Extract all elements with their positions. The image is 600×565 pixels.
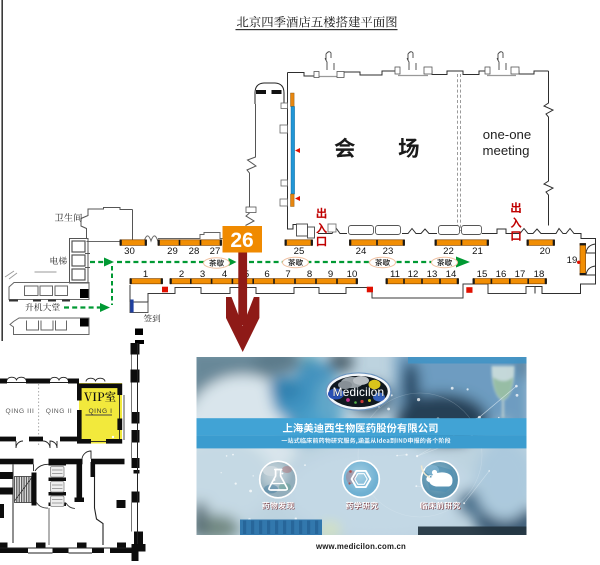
svg-text:Medicilon: Medicilon xyxy=(333,385,385,399)
svg-text:1: 1 xyxy=(143,269,148,280)
svg-text:26: 26 xyxy=(230,229,253,252)
svg-text:QING III: QING III xyxy=(6,408,35,415)
svg-text:3: 3 xyxy=(200,269,205,280)
svg-text:www.medicilon.com.cn: www.medicilon.com.cn xyxy=(315,542,406,551)
svg-text:one-one: one-one xyxy=(483,127,531,142)
svg-text:8: 8 xyxy=(307,269,312,280)
svg-text:21: 21 xyxy=(472,246,483,257)
svg-text:23: 23 xyxy=(383,246,394,257)
svg-text:9: 9 xyxy=(328,269,333,280)
svg-text:10: 10 xyxy=(347,269,358,280)
svg-text:14: 14 xyxy=(446,269,457,280)
svg-text:6: 6 xyxy=(264,269,269,280)
svg-text:28: 28 xyxy=(189,246,200,257)
svg-text:2: 2 xyxy=(179,269,184,280)
svg-text:29: 29 xyxy=(167,246,178,257)
svg-text:20: 20 xyxy=(540,246,551,257)
svg-text:27: 27 xyxy=(210,246,221,257)
svg-text:7: 7 xyxy=(285,269,290,280)
svg-text:11: 11 xyxy=(390,269,400,280)
svg-text:30: 30 xyxy=(124,246,135,257)
svg-text:19: 19 xyxy=(567,255,578,266)
svg-text:24: 24 xyxy=(356,246,367,257)
svg-text:4: 4 xyxy=(222,269,228,280)
svg-text:18: 18 xyxy=(534,269,545,280)
svg-text:12: 12 xyxy=(408,269,419,280)
svg-text:22: 22 xyxy=(443,246,454,257)
svg-text:25: 25 xyxy=(294,246,305,257)
svg-text:QING II: QING II xyxy=(46,408,73,415)
svg-text:15: 15 xyxy=(477,269,488,280)
svg-text:13: 13 xyxy=(427,269,438,280)
svg-text:16: 16 xyxy=(496,269,507,280)
svg-text:QING I: QING I xyxy=(88,408,112,415)
svg-text:meeting: meeting xyxy=(483,143,530,158)
svg-text:17: 17 xyxy=(515,269,526,280)
